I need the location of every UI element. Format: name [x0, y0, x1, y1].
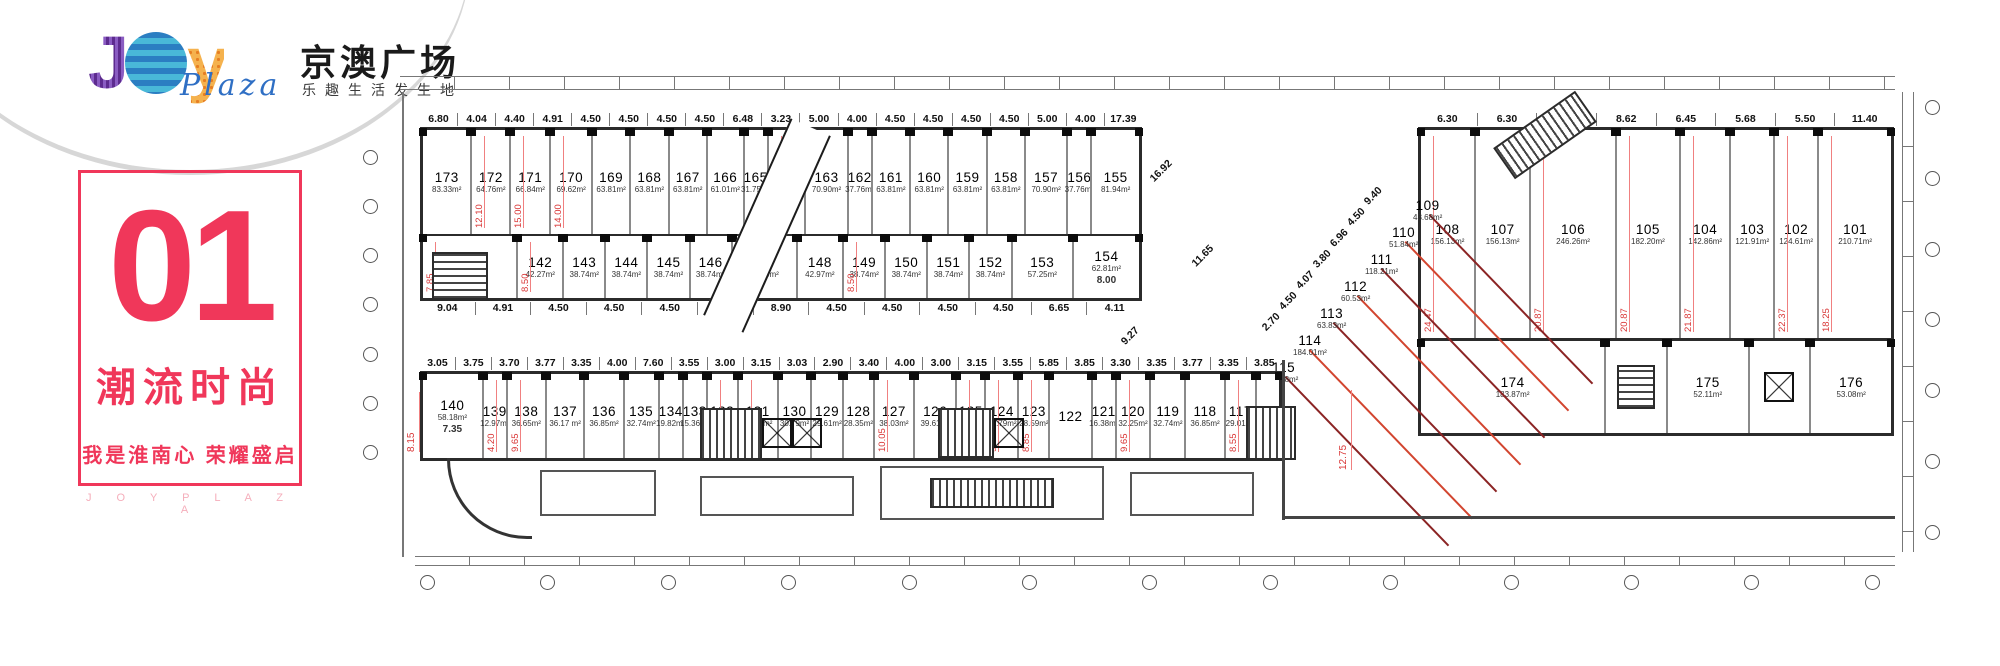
- dim-label: 6.96: [1328, 227, 1351, 250]
- stair-icon: [700, 408, 762, 460]
- unit-number: 128: [846, 404, 870, 419]
- unit-160: 16063.81m²: [909, 130, 947, 234]
- unit-150: 15038.74m²: [884, 236, 926, 298]
- unit-170: 17069.62m²14.00: [549, 130, 591, 234]
- dim-label: 3.85: [1247, 357, 1282, 370]
- dim-label: 3.77: [1175, 357, 1211, 370]
- unit-area: 81.94m²: [1101, 185, 1130, 194]
- elevator-icon: [994, 418, 1024, 448]
- grid-bubble: [363, 199, 378, 214]
- unit-number: 152: [979, 255, 1003, 270]
- center-vertical-dim: 12.75: [1338, 390, 1352, 470]
- dim-label: 5.68: [1716, 113, 1776, 126]
- unit-145: 14538.74m²: [646, 236, 688, 298]
- strip-left-dim: 8.15: [406, 392, 420, 452]
- grid-bubble: [363, 297, 378, 312]
- dim-label: 3.55: [995, 357, 1031, 370]
- dim-label: 4.50: [1277, 290, 1300, 313]
- dim-label: 4.50: [610, 113, 648, 126]
- unit-number: 175: [1696, 375, 1720, 390]
- unit-number: 137: [553, 404, 577, 419]
- unit-number: 113: [1317, 306, 1346, 321]
- unit-divider-line: [1357, 295, 1522, 465]
- unit-157: 15770.90m²: [1024, 130, 1066, 234]
- unit-area: 118.21m²: [1365, 267, 1398, 276]
- unit-number: 156: [1067, 170, 1091, 185]
- elevator-icon: [792, 418, 822, 448]
- unit-161: 16163.81m²: [871, 130, 909, 234]
- dim-label: 4.00: [887, 357, 923, 370]
- unit-128: 12828.35m²: [842, 374, 873, 458]
- dim-label: 4.50: [953, 113, 991, 126]
- unit-number: 135: [629, 404, 653, 419]
- unit-divider-line: [1285, 376, 1450, 546]
- joy-logo-j: J: [88, 21, 125, 104]
- red-dimension: 14.00: [554, 136, 564, 228]
- unit-118: 11836.85m²: [1184, 374, 1223, 458]
- dim-label: 4.50: [572, 113, 610, 126]
- unit-number: 105: [1636, 222, 1660, 237]
- unit-101: 101210.71m²18.25: [1817, 130, 1891, 338]
- unit-area: 28.35m²: [844, 419, 873, 428]
- core-wall: [1282, 360, 1285, 520]
- grid-bubble: [1624, 575, 1639, 590]
- unit-103: 103121.91m²: [1729, 130, 1772, 338]
- dim-label: 9.04: [420, 302, 476, 315]
- unit-number: 168: [637, 170, 661, 185]
- unit-112: 11260.53m²: [1341, 279, 1370, 303]
- unit-area: 51.84m²: [1389, 240, 1418, 249]
- unit-121: 12116.38m²: [1091, 374, 1115, 458]
- unit-number: 104: [1693, 222, 1717, 237]
- dim-label: 3.00: [923, 357, 959, 370]
- unit-155: 15581.94m²: [1090, 130, 1139, 234]
- unit-159: 15963.81m²: [947, 130, 985, 234]
- shop-row-strip: 14058.18m²7.3513912.97m²4.2013836.65m²9.…: [420, 371, 1282, 461]
- unit-144: 14438.74m²: [604, 236, 646, 298]
- grid-bubble: [1925, 383, 1940, 398]
- unit-number: 142: [528, 255, 552, 270]
- dim-label: 6.30: [1418, 113, 1478, 126]
- dim-label: 4.50: [642, 302, 698, 315]
- dim-label: 3.75: [456, 357, 492, 370]
- unit-area: 63.81m²: [915, 185, 944, 194]
- corridor-dim: 11.65: [1190, 243, 1217, 270]
- dim-label: 4.11: [1087, 302, 1142, 315]
- unit-area: 63.81m²: [635, 185, 664, 194]
- right-block-dims-top: 6.306.3011.158.626.455.685.5011.40: [1418, 112, 1894, 127]
- unit-152: 15238.74m²: [968, 236, 1010, 298]
- grid-bubble: [420, 575, 435, 590]
- dim-label: 4.50: [991, 113, 1029, 126]
- unit-area: 63.83m²: [1317, 321, 1346, 330]
- grid-bubble: [363, 248, 378, 263]
- dim-label: 3.70: [492, 357, 528, 370]
- unit-number: 151: [936, 255, 960, 270]
- top-grid-ruler: [400, 76, 1895, 90]
- entrance-canopy: [1130, 472, 1254, 516]
- dim-label: 3.30: [1103, 357, 1139, 370]
- grid-bubble: [1022, 575, 1037, 590]
- red-dimension: 18.25: [1822, 136, 1832, 332]
- unit-162: 16237.76m²: [847, 130, 871, 234]
- unit-number: 161: [879, 170, 903, 185]
- unit-area: 182.20m²: [1631, 237, 1665, 246]
- unit-area: 38.74m²: [892, 270, 921, 279]
- dim-label: 3.40: [851, 357, 887, 370]
- elevator-icon: [1764, 372, 1794, 402]
- unit-area: 57.25m²: [1028, 270, 1057, 279]
- dim-label: 8.90: [754, 302, 810, 315]
- grid-bubble: [540, 575, 555, 590]
- red-dimension: 15.00: [514, 136, 524, 228]
- unit-158: 15863.81m²: [986, 130, 1024, 234]
- dim-label: 7.60: [636, 357, 672, 370]
- unit-number: 158: [994, 170, 1018, 185]
- red-dimension: 9.65: [1120, 380, 1130, 452]
- unit-area: 38.74m²: [934, 270, 963, 279]
- unit-176: 176 53.08m²: [1809, 341, 1891, 433]
- grid-bubble: [363, 396, 378, 411]
- unit-number: 159: [956, 170, 980, 185]
- unit-166: 16661.01m²: [706, 130, 743, 234]
- unit-number: 163: [815, 170, 839, 185]
- unit-number: 144: [614, 255, 638, 270]
- floor-subslogan: 我是淮南心 荣耀盛启: [81, 439, 299, 468]
- dim-label: 5.50: [1776, 113, 1836, 126]
- dim-label: 5.00: [800, 113, 838, 126]
- dim-label: 4.91: [476, 302, 532, 315]
- dim-label: 5.85: [1031, 357, 1067, 370]
- unit-area: 38.74m²: [654, 270, 683, 279]
- unit-127: 12738.03m²10.05: [873, 374, 913, 458]
- dim-label: 2.90: [815, 357, 851, 370]
- unit-number: 111: [1365, 252, 1398, 267]
- dim-label: 9.40: [1362, 185, 1385, 208]
- red-dimension: 8.55: [1229, 380, 1239, 452]
- unit-number: 109: [1413, 198, 1442, 213]
- unit-area: 70.90m²: [1031, 185, 1060, 194]
- unit-151: 15138.74m²: [926, 236, 968, 298]
- elevator-icon: [762, 418, 792, 448]
- top-block-dims-top: 6.804.044.404.914.504.504.504.506.483.23…: [420, 112, 1142, 127]
- unit-area: 38.74m²: [612, 270, 641, 279]
- left-grid-bubbles: [363, 150, 378, 460]
- dim-label: 4.50: [915, 113, 953, 126]
- dim-label: 4.50: [587, 302, 643, 315]
- dim-label: 3.35: [1139, 357, 1175, 370]
- bottom-grid-bubbles: [420, 575, 1880, 590]
- dim-label: 2.70: [1260, 311, 1283, 334]
- unit-area: 42.97m²: [805, 270, 834, 279]
- dim-label: 4.40: [496, 113, 534, 126]
- unit-175: 175 52.11m²: [1666, 341, 1748, 433]
- floor-slogan-en: J O Y P L A Z A: [81, 492, 299, 516]
- unit-number: 157: [1034, 170, 1058, 185]
- dim-label: 6.45: [1657, 113, 1717, 126]
- unit-number: 129: [815, 404, 839, 419]
- unit-area: 63.81m²: [991, 185, 1020, 194]
- unit-area: 58.18m²: [438, 413, 467, 422]
- dim-label: 4.50: [920, 302, 976, 315]
- dim-label: 4.50: [809, 302, 865, 315]
- floor-info-panel: 01 层 潮流时尚 我是淮南心 荣耀盛启 J O Y P L A Z A: [78, 170, 302, 486]
- lower-wall: [1285, 516, 1895, 519]
- dim-label: 3.05: [420, 357, 456, 370]
- unit-divider-line: [1333, 322, 1498, 492]
- corridor-dim: 9.27: [1119, 325, 1142, 348]
- unit-156: 15637.76m²: [1066, 130, 1090, 234]
- unit-area: 32.74m²: [1153, 419, 1182, 428]
- unit-number: 155: [1104, 170, 1128, 185]
- unit-divider-line: [1429, 214, 1594, 384]
- unit-143: 14338.74m²: [562, 236, 604, 298]
- grid-bubble: [1383, 575, 1398, 590]
- grid-bubble: [1865, 575, 1880, 590]
- dim-label: 4.50: [648, 113, 686, 126]
- unit-105: 105182.20m²20.87: [1615, 130, 1679, 338]
- dim-label: 6.48: [724, 113, 762, 126]
- unit-153: 15357.25m²: [1011, 236, 1072, 298]
- unit-number: 122: [1059, 409, 1083, 424]
- strip-dims-top: 3.053.753.703.773.354.007.603.553.003.15…: [420, 356, 1282, 371]
- red-dimension: 9.65: [511, 380, 521, 452]
- unit-number: 153: [1030, 255, 1054, 270]
- unit-divider-line: [1309, 349, 1474, 519]
- unit-area: 62.81m²: [1092, 264, 1121, 273]
- unit-number: 119: [1156, 404, 1179, 419]
- unit-number: 162: [848, 170, 872, 185]
- unit-area: 36.85m²: [589, 419, 618, 428]
- red-dimension: 21.87: [1684, 136, 1694, 332]
- stair-icon: [1246, 406, 1296, 460]
- unit-number: 103: [1740, 222, 1764, 237]
- grid-bubble: [661, 575, 676, 590]
- unit-area: 83.33m²: [432, 185, 461, 194]
- grid-bubble: [363, 347, 378, 362]
- red-dimension: 22.37: [1778, 136, 1788, 332]
- unit-154: 15462.81m²8.00: [1072, 236, 1139, 298]
- unit-area: 210.71m²: [1838, 237, 1872, 246]
- grid-bubble: [1744, 575, 1759, 590]
- dim-label: 4.00: [1067, 113, 1105, 126]
- unit-138: 13836.65m²9.65: [506, 374, 545, 458]
- unit-area: 63.81m²: [596, 185, 625, 194]
- unit-111: 111118.21m²: [1365, 252, 1398, 276]
- unit-122: 122: [1048, 374, 1090, 458]
- dimension: 8.00: [1097, 275, 1116, 286]
- grid-bubble: [1925, 454, 1940, 469]
- unit-173: 17383.33m²: [423, 130, 470, 234]
- dim-label: 8.62: [1597, 113, 1657, 126]
- dim-label: 3.35: [1211, 357, 1247, 370]
- unit-area: 36.17 m²: [549, 419, 581, 428]
- unit-134: 13419.82m²: [658, 374, 682, 458]
- dim-label: 4.07: [1294, 269, 1317, 292]
- unit-area: 61.01m²: [711, 185, 740, 194]
- right-grid-bubbles: [1925, 100, 1940, 540]
- unit-102: 102124.61m²22.37: [1773, 130, 1817, 338]
- unit-divider-line: [1405, 241, 1570, 411]
- top-block-dims-bottom: 9.044.914.504.504.504.508.904.504.504.50…: [420, 301, 1142, 316]
- dim-label: 4.04: [458, 113, 496, 126]
- unit-137: 13736.17 m²: [545, 374, 584, 458]
- unit-140: 14058.18m²7.35: [423, 374, 482, 458]
- unit-109: 10943.68m²: [1413, 198, 1442, 222]
- unit-number: 114: [1293, 333, 1327, 348]
- grid-bubble: [1142, 575, 1157, 590]
- unit-area: 36.85m²: [1190, 419, 1219, 428]
- unit-divider-line: [1381, 268, 1546, 438]
- unit-172: 17264.76m²12.10: [470, 130, 509, 234]
- unit-119: 11932.74m²: [1149, 374, 1184, 458]
- dimension: 7.35: [443, 424, 462, 435]
- unit-number: 143: [572, 255, 596, 270]
- right-grid-ruler: [1902, 92, 1914, 552]
- unit-number: 101: [1843, 222, 1867, 237]
- unit-area: 32.74m²: [626, 419, 655, 428]
- bottom-shop-strip: 3.053.753.703.773.354.007.603.553.003.15…: [420, 356, 1282, 461]
- unit-149: 14938.74m²8.50: [842, 236, 884, 298]
- unit-113: 11363.83m²: [1317, 306, 1346, 330]
- dim-label: 17.39: [1105, 113, 1142, 126]
- dim-label: 4.00: [600, 357, 636, 370]
- grid-bubble: [1925, 312, 1940, 327]
- grid-bubble: [1925, 242, 1940, 257]
- plaza-script-text: Plaza: [180, 68, 281, 103]
- dim-label: 3.77: [528, 357, 564, 370]
- unit-114: 114184.01m²: [1293, 333, 1327, 357]
- entrance-canopy: [540, 470, 656, 516]
- corridor-dim: 16.92: [1148, 157, 1175, 184]
- unit-135: 13532.74m²: [623, 374, 658, 458]
- floor-badge-label: 层: [264, 217, 280, 367]
- red-dimension: 10.05: [878, 380, 888, 452]
- floor-number: 01 层: [81, 191, 299, 341]
- dim-label: 4.50: [531, 302, 587, 315]
- unit-number: 166: [713, 170, 737, 185]
- unit-number: 130: [783, 404, 807, 419]
- stair-core: [1604, 341, 1666, 433]
- unit-number: 176: [1839, 375, 1863, 390]
- grid-bubble: [1925, 525, 1940, 540]
- unit-120: 12032.25m²9.65: [1115, 374, 1150, 458]
- dim-label: 6.80: [420, 113, 458, 126]
- unit-number: 134: [659, 404, 683, 419]
- unit-area: 63.81m²: [876, 185, 905, 194]
- dim-label: 3.00: [708, 357, 744, 370]
- unit-area: 63.81m²: [673, 185, 702, 194]
- unit-number: 150: [894, 255, 918, 270]
- grid-bubble: [902, 575, 917, 590]
- unit-area: 53.08m²: [1836, 390, 1865, 399]
- grid-bubble: [781, 575, 796, 590]
- unit-number: 145: [656, 255, 680, 270]
- unit-136: 13636.85m²: [583, 374, 622, 458]
- unit-number: 112: [1341, 279, 1370, 294]
- unit-number: 154: [1094, 249, 1118, 264]
- left-boundary-line: [402, 92, 404, 557]
- unit-area: 63.81m²: [953, 185, 982, 194]
- red-dimension: 8.50: [847, 242, 857, 292]
- brand-logo: Jy Plaza 京澳广场 乐趣生活发生地: [88, 28, 508, 108]
- dim-label: 4.50: [1345, 206, 1368, 229]
- grid-bubble: [363, 150, 378, 165]
- dim-label: 4.50: [877, 113, 915, 126]
- red-dimension: 20.87: [1620, 136, 1630, 332]
- dim-label: 3.03: [780, 357, 816, 370]
- unit-169: 16963.81m²: [591, 130, 629, 234]
- dim-label: 6.65: [1032, 302, 1088, 315]
- unit-number: 146: [699, 255, 723, 270]
- unit-number: 140: [440, 398, 464, 413]
- unit-area: 70.90m²: [812, 185, 841, 194]
- grid-bubble: [1504, 575, 1519, 590]
- corner-arc-wall: [447, 458, 532, 539]
- grid-bubble: [1925, 100, 1940, 115]
- unit-142: 14242.27m²8.50: [516, 236, 562, 298]
- unit-area: 52.11m²: [1693, 390, 1722, 399]
- stair-icon: [930, 478, 1054, 508]
- dim-label: 3.85: [1067, 357, 1103, 370]
- stair-icon: [1617, 365, 1655, 409]
- stair-icon: [432, 252, 488, 300]
- unit-number: 148: [808, 255, 832, 270]
- dim-label: 3.15: [959, 357, 995, 370]
- unit-number: 173: [435, 170, 459, 185]
- elevator-core: [1748, 341, 1810, 433]
- entrance-canopy: [700, 476, 854, 516]
- unit-number: 118: [1194, 404, 1217, 419]
- unit-167: 16763.81m²: [668, 130, 706, 234]
- dim-label: 5.00: [1029, 113, 1067, 126]
- dim-label: 4.00: [839, 113, 877, 126]
- unit-number: 169: [599, 170, 623, 185]
- red-dimension: 12.10: [475, 136, 485, 228]
- dim-label: 3.80: [1311, 248, 1334, 271]
- dim-label: 3.35: [564, 357, 600, 370]
- unit-number: 110: [1389, 225, 1418, 240]
- unit-area: 121.91m²: [1735, 237, 1769, 246]
- unit-168: 16863.81m²: [629, 130, 667, 234]
- dim-label: 11.40: [1835, 113, 1894, 126]
- unit-110: 11051.84m²: [1389, 225, 1418, 249]
- stair-icon: [938, 408, 994, 458]
- grid-bubble: [1263, 575, 1278, 590]
- unit-number: 136: [592, 404, 616, 419]
- grid-bubble: [363, 445, 378, 460]
- unit-number: 167: [676, 170, 700, 185]
- grid-bubble: [1925, 171, 1940, 186]
- unit-area: 38.74m²: [976, 270, 1005, 279]
- unit-area: 60.53m²: [1341, 294, 1370, 303]
- bottom-grid-ruler: [415, 556, 1895, 566]
- dim-label: 3.55: [672, 357, 708, 370]
- dim-label: 4.91: [534, 113, 572, 126]
- unit-139: 13912.97m²4.20: [482, 374, 506, 458]
- unit-area: 38.74m²: [570, 270, 599, 279]
- dim-label: 4.50: [865, 302, 921, 315]
- red-dimension: 4.20: [487, 380, 497, 452]
- unit-number: 160: [917, 170, 941, 185]
- unit-104: 104142.86m²21.87: [1679, 130, 1730, 338]
- unit-148: 14842.97m²: [796, 236, 843, 298]
- dim-label: 4.50: [976, 302, 1032, 315]
- unit-171: 17166.84m²15.00: [509, 130, 549, 234]
- joy-logo-o-icon: [125, 32, 187, 94]
- unit-area: 43.68m²: [1413, 213, 1442, 222]
- unit-area: 184.01m²: [1293, 348, 1327, 357]
